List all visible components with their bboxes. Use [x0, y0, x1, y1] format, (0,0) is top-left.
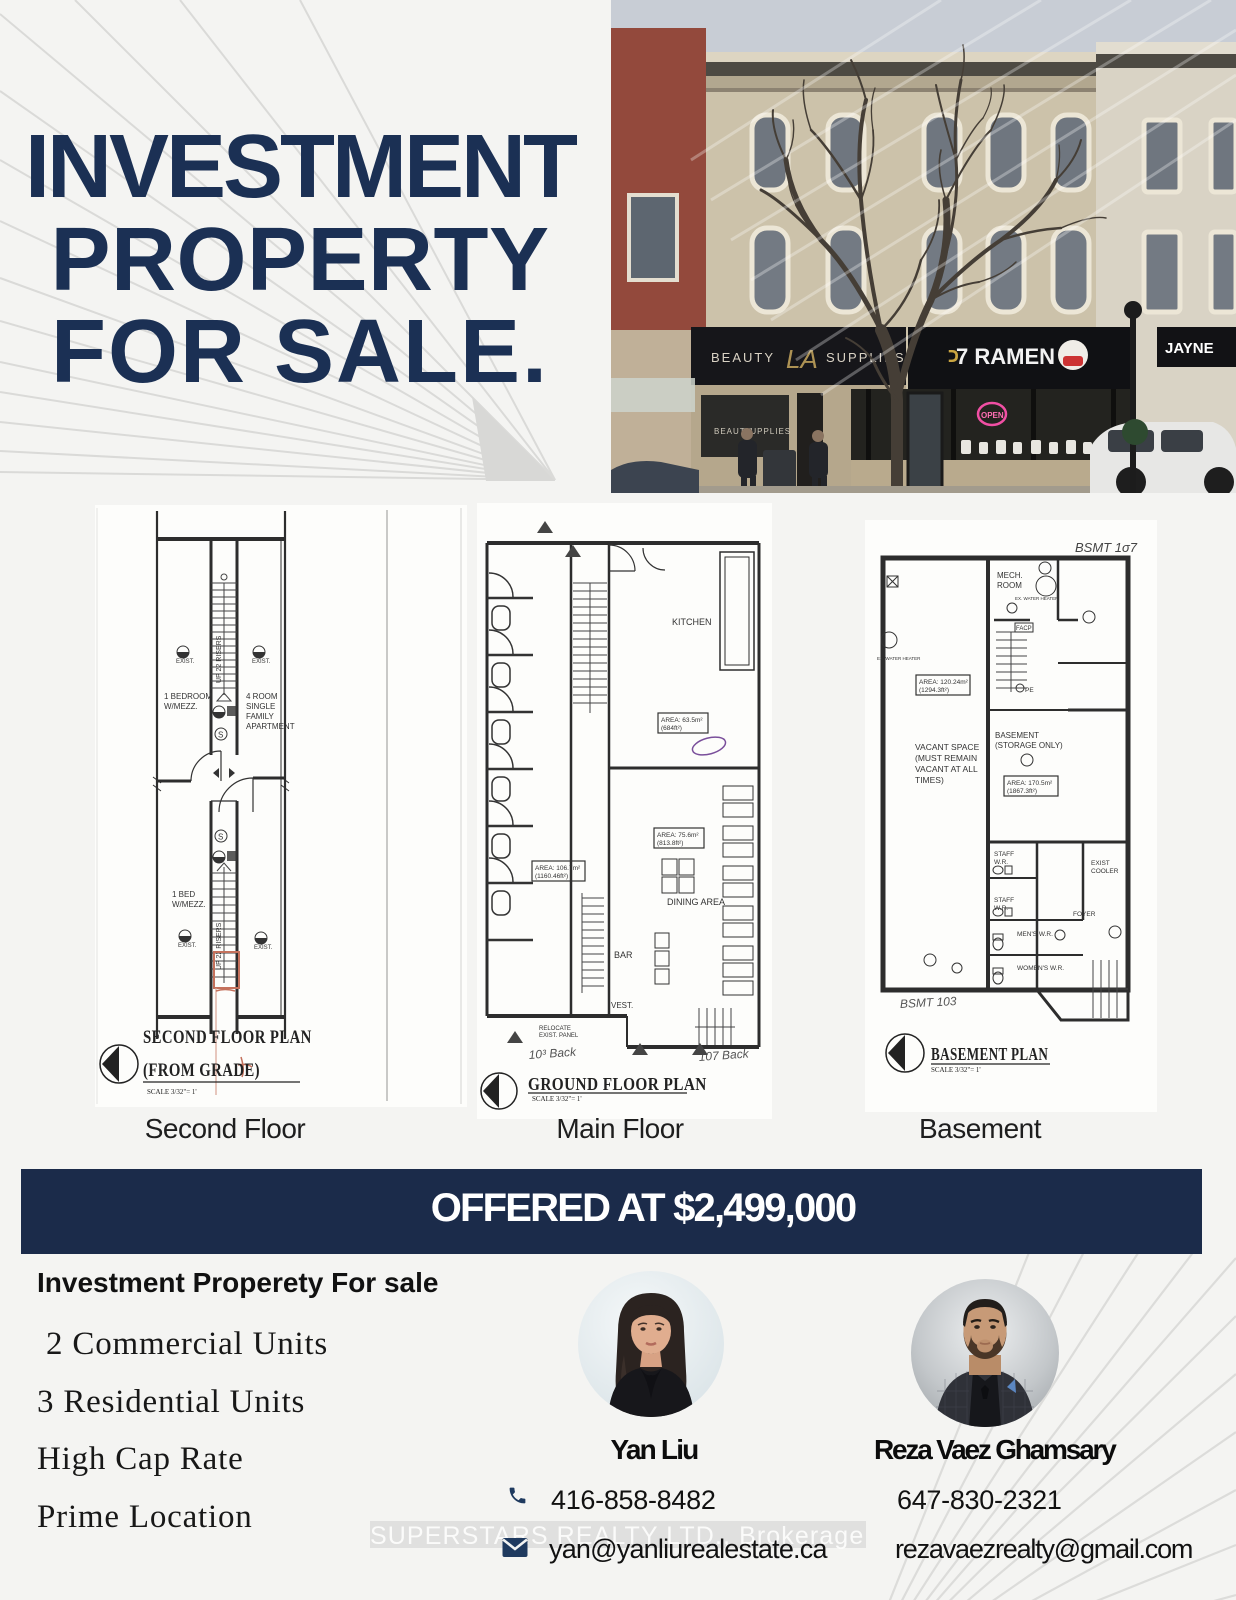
svg-text:UP 22 RISERS: UP 22 RISERS: [216, 635, 223, 683]
svg-text:STAFF: STAFF: [994, 851, 1014, 858]
svg-text:AREA: 106.7m²: AREA: 106.7m²: [535, 865, 581, 872]
svg-text:SCALE 3/32"= 1': SCALE 3/32"= 1': [532, 1095, 582, 1103]
svg-text:AREA: 75.6m²: AREA: 75.6m²: [657, 832, 699, 839]
svg-text:PE: PE: [1025, 687, 1034, 694]
svg-text:BEAUTY: BEAUTY: [711, 350, 775, 365]
svg-text:COOLER: COOLER: [1091, 868, 1119, 875]
svg-text:UP 22 RISERS: UP 22 RISERS: [216, 922, 223, 970]
svg-text:BSMT 1σ7: BSMT 1σ7: [1075, 540, 1138, 555]
svg-text:SECOND FLOOR PLAN: SECOND FLOOR PLAN: [143, 1026, 312, 1047]
svg-text:BASEMENT: BASEMENT: [995, 731, 1039, 740]
svg-text:RELOCATE: RELOCATE: [539, 1026, 571, 1032]
svg-text:EXIST.: EXIST.: [254, 945, 273, 951]
svg-text:TIMES): TIMES): [915, 775, 944, 785]
svg-text:7 RAMEN: 7 RAMEN: [956, 344, 1055, 369]
svg-text:EX. WATER HEATER: EX. WATER HEATER: [877, 656, 921, 661]
svg-text:MECH.: MECH.: [997, 571, 1023, 580]
svg-text:SCALE 3/32"= 1': SCALE 3/32"= 1': [147, 1088, 197, 1096]
svg-text:EX. WATER HEATER: EX. WATER HEATER: [1015, 596, 1059, 601]
svg-text:S: S: [218, 833, 223, 842]
svg-text:EXIST. PANEL: EXIST. PANEL: [539, 1033, 579, 1039]
svg-text:FOYER: FOYER: [1073, 911, 1096, 918]
svg-text:APARTMENT: APARTMENT: [246, 722, 295, 731]
svg-text:(1160.46ft²): (1160.46ft²): [535, 873, 568, 880]
svg-text:VEST.: VEST.: [611, 1001, 633, 1010]
svg-text:1 BEDROOM: 1 BEDROOM: [164, 692, 212, 701]
svg-text:BAR: BAR: [614, 950, 633, 960]
svg-text:(MUST REMAIN: (MUST REMAIN: [915, 753, 977, 763]
svg-text:ROOM: ROOM: [997, 581, 1022, 590]
svg-text:JAYNE: JAYNE: [1165, 340, 1214, 357]
svg-text:1 BED: 1 BED: [172, 890, 195, 899]
svg-text:AREA: 63.5m²: AREA: 63.5m²: [661, 717, 703, 724]
svg-text:EXIST: EXIST: [1091, 860, 1110, 867]
svg-text:FACP: FACP: [1016, 626, 1032, 632]
svg-text:BASEMENT PLAN: BASEMENT PLAN: [931, 1045, 1048, 1064]
svg-text:(813.8ft²): (813.8ft²): [657, 840, 683, 847]
svg-text:EXIST.: EXIST.: [252, 659, 271, 665]
svg-text:MEN'S W.R.: MEN'S W.R.: [1017, 931, 1053, 938]
svg-text:(FROM GRADE): (FROM GRADE): [143, 1059, 260, 1080]
svg-text:SCALE 3/32"= 1': SCALE 3/32"= 1': [931, 1066, 981, 1074]
svg-text:W/MEZZ.: W/MEZZ.: [172, 900, 206, 909]
svg-text:EXIST.: EXIST.: [178, 943, 197, 949]
svg-text:AREA: 170.5m²: AREA: 170.5m²: [1007, 780, 1053, 787]
svg-text:4 ROOM: 4 ROOM: [246, 692, 278, 701]
svg-text:OPEN: OPEN: [981, 411, 1004, 420]
svg-text:AREA: 120.24m²: AREA: 120.24m²: [919, 679, 969, 686]
svg-text:(STORAGE ONLY): (STORAGE ONLY): [995, 741, 1063, 750]
svg-text:(1294.3ft²): (1294.3ft²): [919, 687, 949, 694]
svg-text:S: S: [218, 731, 223, 740]
svg-text:GROUND FLOOR PLAN: GROUND FLOOR PLAN: [528, 1074, 707, 1094]
svg-text:(1867.3ft²): (1867.3ft²): [1007, 788, 1037, 795]
svg-text:(684ft²): (684ft²): [661, 725, 682, 732]
svg-text:BSMT 103: BSMT 103: [900, 994, 958, 1011]
svg-text:STAFF: STAFF: [994, 897, 1014, 904]
svg-text:KITCHEN: KITCHEN: [672, 617, 712, 627]
svg-text:VACANT SPACE: VACANT SPACE: [915, 742, 980, 752]
svg-text:W/MEZZ.: W/MEZZ.: [164, 702, 198, 711]
svg-text:VACANT AT ALL: VACANT AT ALL: [915, 764, 978, 774]
svg-text:W.R.: W.R.: [994, 859, 1008, 866]
svg-text:DINING AREA: DINING AREA: [667, 897, 725, 907]
svg-text:EXIST.: EXIST.: [176, 659, 195, 665]
svg-text:WOMEN'S W.R.: WOMEN'S W.R.: [1017, 965, 1064, 972]
svg-text:כ: כ: [948, 345, 959, 367]
svg-text:SINGLE: SINGLE: [246, 702, 275, 711]
svg-text:FAMILY: FAMILY: [246, 712, 275, 721]
